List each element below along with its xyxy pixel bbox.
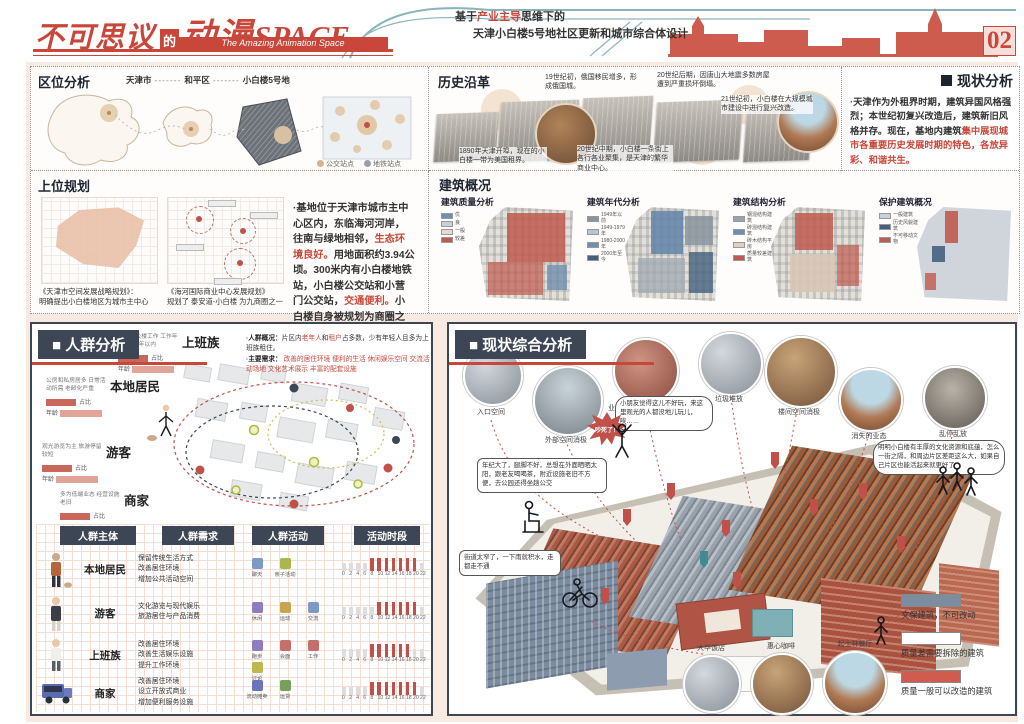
history-note-3: 21世纪初，小白楼在大规模城市建设中进行复兴改造。 <box>721 95 813 114</box>
meet-icon <box>280 640 291 651</box>
issue-label-between-buildings: 楼间空间消极 <box>761 408 837 417</box>
planning-map-1 <box>41 197 158 284</box>
chat-icon <box>252 558 263 569</box>
issue-photo-garbage <box>699 332 763 396</box>
col-header-timeband: 活动时段 <box>354 526 420 545</box>
time-bars <box>342 642 428 657</box>
bus-stop-dot <box>317 160 324 167</box>
persona-merchant: 多为低端业态 经营设施老旧商家 占比 <box>60 490 149 520</box>
status-title: 现状分析 <box>941 71 1013 91</box>
status-paragraph: ·天津作为外租界时期，建筑异国风格强烈；本世纪初复兴改造后，建筑新旧风格并存。现… <box>850 95 1014 167</box>
delivery-icon <box>280 680 291 691</box>
time-bars <box>342 556 428 571</box>
landmark-photo-cafe <box>751 653 813 715</box>
legend-renovate-swatch <box>901 670 961 683</box>
building-title: 建筑概况 <box>439 175 491 194</box>
issue-photo-between-buildings <box>765 336 837 408</box>
planning-map-2 <box>167 197 284 284</box>
social-icon <box>308 602 319 613</box>
crumb-site: 小白楼5号地 <box>243 75 290 85</box>
persona-tourist: 观光游览为主 旅游停留较短游客 占比 年龄 <box>42 442 131 483</box>
square-bullet-icon <box>941 75 952 86</box>
page-number: 02 <box>983 26 1016 56</box>
tagline-highlight: 产业主导 <box>477 11 521 23</box>
comprehensive-title-underline <box>449 362 654 365</box>
persona-local: 公房和私房居多 日常活动所需 老龄化严重本地居民 占比 年龄 <box>46 376 160 417</box>
table-row-worker: 上班族 改善居住环境 改善生活娱乐设施 提升工作环境 跑步 会面 工作 讨论 0… <box>36 636 430 676</box>
tourist-figure <box>40 596 74 634</box>
history-note-4: 1890年天津开埠，现在的小白楼一带为美国租界。 <box>459 147 547 166</box>
heritage-blue-building-2 <box>607 648 667 690</box>
planning-map-1-area <box>50 206 148 272</box>
section-history: 历史沿革 19世纪初，俄国移民增多，形成俄国城。 20世纪后期，因唐山大地震多数… <box>429 67 841 171</box>
title-rule <box>33 49 393 52</box>
planning-title: 上位规划 <box>38 176 90 195</box>
leisure-icon <box>252 602 263 613</box>
discuss-icon <box>252 662 263 673</box>
crowd-table: 人群主体 人群需求 人群活动 活动时段 本地居民 保留传统生活方式 改善居住环境… <box>36 524 430 712</box>
vending-truck-icon <box>252 680 263 691</box>
legend-renovate: 质量一般可以改造的建筑 <box>901 670 992 697</box>
map-pin-teal <box>700 551 708 563</box>
time-ticks: 0246810121416182022 <box>342 615 428 621</box>
col-header-needs: 人群需求 <box>162 526 234 545</box>
planning-map-1-caption: 《天津市空间发展战略规划》： 明确提出小白楼地区为城市主中心 <box>39 287 161 307</box>
building-map-quality: 建筑质量分析 优 良 一般 较差 <box>439 195 577 307</box>
panel-comprehensive-analysis: ■ 现状综合分析 入口空间 外部空间消极 业态低端 产业结构单一 垃圾堆放 <box>447 322 1017 716</box>
activity-family: 亲子活动 <box>272 558 298 578</box>
map-pin <box>733 572 741 584</box>
issue-label-exterior: 外部空间消极 <box>531 436 601 445</box>
work-icon <box>308 640 319 651</box>
metro-stop-label: 地铁站点 <box>373 161 401 168</box>
activity-meet: 会面 <box>272 640 298 660</box>
sport-icon <box>280 602 291 613</box>
map-pin <box>722 520 730 532</box>
poster-board: 不可思议的动漫SPACE The Amazing Animation Space… <box>0 0 1024 724</box>
building-map-protected: 保护建筑概况 一般建筑 历史风貌建筑 不可移动文物 <box>877 195 1015 307</box>
bus-stop-label: 公交站点 <box>326 161 354 168</box>
section-status-analysis: 现状分析 ·天津作为外租界时期，建筑异国风格强烈；本世纪初复兴改造后，建筑新旧风… <box>841 67 1019 171</box>
speech-bubble-street: 街道太窄了，一下雨就积水，走都走不通 <box>459 550 561 576</box>
activity-social: 交流 <box>300 602 326 622</box>
activity-chat: 聊天 <box>244 558 270 578</box>
crumb-district: 和平区 <box>184 75 210 85</box>
crowd-title-underline <box>32 362 207 365</box>
map-pin <box>859 483 867 495</box>
building-map-protected-legend: 一般建筑 历史风貌建筑 不可移动文物 <box>879 213 919 247</box>
issue-label-parking: 乱停乱放 <box>921 430 985 439</box>
crowd-overview: ·人群概况：片区内老年人和租户占多数，少有年轻人且多为上班族租住。 ·主要需求：… <box>246 334 430 376</box>
crowd-panel-title: ■ 人群分析 <box>38 330 139 359</box>
legend-heritage: 文保建筑，不可改动 <box>901 594 976 621</box>
location-legend: 公交站点 地铁站点 <box>309 159 401 169</box>
comprehensive-panel-title: ■ 现状综合分析 <box>455 330 586 359</box>
activity-delivery: 运货 <box>272 680 298 700</box>
tagline-prefix: 基于 <box>455 11 477 23</box>
worker-figure <box>40 638 74 674</box>
issue-photo-lost-business <box>839 368 903 432</box>
building-map-quality-legend: 优 良 一般 较差 <box>441 213 481 245</box>
speech-bubble-kids: 小朋友觉得这儿不好玩，来这里观光的人都没地儿玩儿，唉…… <box>615 396 713 431</box>
history-note-2: 20世纪后期，因唐山大地震多数房屋遭到严重损坏倒塌。 <box>657 71 771 90</box>
building-map-structure: 建筑结构分析 钢混结构建筑 砖混结构建筑 砖木结构平房 质量较差建筑 <box>731 195 869 307</box>
time-ticks: 0246810121416182022 <box>342 695 428 701</box>
merchant-truck <box>40 678 74 708</box>
table-row-tourist: 游客 文化游览与现代娱乐 旅游居住与产品消费 休闲 运动 交流 02468101… <box>36 592 430 636</box>
history-note-1: 19世纪初，俄国移民增多，形成俄国城。 <box>545 73 641 92</box>
map-pin <box>771 452 779 464</box>
activity-leisure: 休闲 <box>244 602 270 622</box>
activity-work: 工作 <box>300 640 326 660</box>
metro-stop-dot <box>364 160 371 167</box>
time-bars <box>342 680 428 695</box>
map-pin <box>601 588 609 600</box>
tagline-line2: 天津小白楼5号地社区更新和城市综合体设计 <box>473 26 688 43</box>
building-map-age-legend: 1949年以前 1949-1979年 1980-2000年 2000年至今 <box>587 213 627 265</box>
section-building-overview: 建筑概况 建筑质量分析 优 良 一般 较差 建筑年代分析 1949年以 <box>429 171 1019 313</box>
activity-sport: 运动 <box>272 602 298 622</box>
legend-heritage-swatch <box>901 594 961 607</box>
issue-label-entrance: 入口空间 <box>459 408 523 417</box>
planning-map-2-caption: 《海河国际商业中心发展规划》 规划了 泰安道-小白楼 为九商圈之一 <box>167 287 289 307</box>
title-subtitle-en: The Amazing Animation Space <box>178 37 388 49</box>
map-pin <box>667 483 675 495</box>
analysis-band: 区位分析 天津市-------和平区-------小白楼5号地 <box>30 66 1020 314</box>
section-upper-planning: 上位规划 《天津市空间发展战略规划》： 明确提出小白楼地区为城市主中心 <box>31 171 429 313</box>
speech-bubble-elderly: 年纪大了，腿脚不好，总想在外面晒晒太阳，跟老友喝喝茶，附近设施老旧不方便，去公园… <box>477 458 607 493</box>
legend-demolish: 质量差需要拆除的建筑 <box>901 632 984 659</box>
panel-crowd-analysis: ■ 人群分析 ·人群概况：片区内老年人和租户占多数，少有年轻人且多为上班族租住。… <box>30 322 433 716</box>
tagline-suffix: 思维下的 <box>521 11 565 23</box>
landmark-label-kiessling: 起士林餐厅 <box>823 640 887 649</box>
table-row-merchant: 商家 改善居住环境 设立开放式商业 增加便利服务设施 流动摊卖 运货 02468… <box>36 676 430 710</box>
landmark-photo-kiessling <box>823 651 887 715</box>
legend-demolish-swatch <box>901 632 961 645</box>
section-location-analysis: 区位分析 天津市-------和平区-------小白楼5号地 <box>31 67 429 171</box>
building-map-structure-legend: 钢混结构建筑 砖混结构建筑 砖木结构平房 质量较差建筑 <box>733 213 773 265</box>
tagline: 基于产业主导思维下的 天津小白楼5号地社区更新和城市综合体设计 <box>455 9 688 42</box>
landmark-label-hotel: 大华饭店 <box>681 644 741 653</box>
time-ticks: 0246810121416182022 <box>342 571 428 577</box>
table-row-local: 本地居民 保留传统生活方式 改善居住环境 增加公共活动空间 聊天 亲子活动 02… <box>36 548 430 592</box>
col-header-activities: 人群活动 <box>252 526 324 545</box>
landmark-photo-hotel <box>683 655 741 713</box>
location-maps-illustration <box>35 85 425 169</box>
time-ticks: 0246810121416182022 <box>342 657 428 663</box>
crumb-city: 天津市 <box>126 75 152 85</box>
activity-street-vending: 流动摊卖 <box>244 680 270 700</box>
family-icon <box>280 558 291 569</box>
local-resident-figure <box>40 552 74 590</box>
issue-photo-industry <box>613 338 679 404</box>
history-note-5: 20世纪中期，小白楼一条街上各行各业聚集，是天津的繁华商业中心。 <box>577 145 673 173</box>
activity-run: 跑步 <box>244 640 270 660</box>
col-header-subject: 人群主体 <box>60 526 136 545</box>
run-icon <box>252 640 263 651</box>
map-pin <box>810 499 818 511</box>
issue-photo-parking <box>923 366 987 430</box>
glass-pavilion <box>752 609 792 637</box>
title-rule-2 <box>33 55 393 56</box>
thought-bubble-culture: 明明小白楼有丰厚的文化资源和底蕴，怎么一街之隔，和周边片区差距这么大，如果自己片… <box>873 440 1005 475</box>
building-map-age: 建筑年代分析 1949年以前 1949-1979年 1980-2000年 200… <box>585 195 723 307</box>
time-bars <box>342 600 428 615</box>
map-pin <box>623 509 631 521</box>
history-title: 历史沿革 <box>438 72 490 91</box>
map-pin <box>897 536 905 548</box>
landmark-label-cafe: 惠心咖啡 <box>751 642 811 651</box>
crowd-flow-map <box>144 352 430 524</box>
header: 不可思议的动漫SPACE The Amazing Animation Space… <box>0 0 1024 62</box>
